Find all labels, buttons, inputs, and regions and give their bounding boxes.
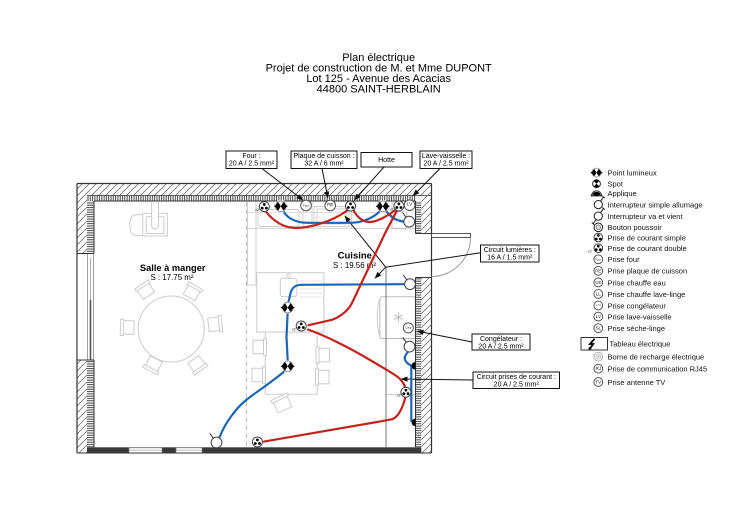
svg-text:Prise chauffe eau: Prise chauffe eau <box>608 278 666 287</box>
svg-text:Prise de courant simple: Prise de courant simple <box>608 233 686 242</box>
svg-text:Lave-vaisselle :: Lave-vaisselle : <box>422 153 470 160</box>
svg-text:Plaque de cuisson :: Plaque de cuisson : <box>293 153 354 160</box>
svg-text:Spot: Spot <box>608 180 624 189</box>
svg-text:Circuit prises de courant :: Circuit prises de courant : <box>477 374 556 381</box>
svg-text:SL: SL <box>595 326 601 331</box>
svg-text:Prise sèche-linge: Prise sèche-linge <box>608 324 666 333</box>
svg-text:Prise de courant double: Prise de courant double <box>608 244 687 253</box>
svg-text:x2: x2 <box>292 327 296 331</box>
svg-text:Four: Four <box>595 257 601 261</box>
svg-text:Bouton poussoir: Bouton poussoir <box>608 223 663 232</box>
svg-text:Tableau électrique: Tableau électrique <box>610 340 671 349</box>
svg-text:Cong: Cong <box>405 326 411 329</box>
svg-text:Hotte: Hotte <box>378 157 395 164</box>
svg-text:Borne de recharge électrique: Borne de recharge électrique <box>608 353 705 362</box>
svg-text:Salle à manger: Salle à manger <box>140 263 206 273</box>
svg-text:Four :: Four : <box>242 153 260 160</box>
svg-text:Applique: Applique <box>608 189 637 198</box>
svg-text:LL: LL <box>596 292 602 297</box>
svg-text:x2: x2 <box>588 249 592 253</box>
svg-text:Prise antenne TV: Prise antenne TV <box>608 378 666 387</box>
svg-text:x2: x2 <box>397 394 401 398</box>
svg-text:TV: TV <box>595 380 602 385</box>
svg-text:20 A / 2.5 mm²: 20 A / 2.5 mm² <box>494 382 540 389</box>
svg-text:LV: LV <box>407 202 413 208</box>
svg-text:20 A / 2.5 mm²: 20 A / 2.5 mm² <box>423 161 469 168</box>
svg-text:Congélateur :: Congélateur : <box>480 336 522 343</box>
svg-text:20 A / 2.5 mm²: 20 A / 2.5 mm² <box>478 344 524 351</box>
svg-text:16 A / 1.5 mm²: 16 A / 1.5 mm² <box>487 255 533 262</box>
svg-text:Interrupteur va et vient: Interrupteur va et vient <box>608 212 684 221</box>
svg-text:Point lumineux: Point lumineux <box>608 169 657 178</box>
svg-text:Prise four: Prise four <box>608 255 641 264</box>
svg-text:RJ: RJ <box>595 366 601 371</box>
svg-text:Prise de communication RJ45: Prise de communication RJ45 <box>608 365 708 374</box>
svg-text:Prise plaque de cuisson: Prise plaque de cuisson <box>608 267 688 276</box>
svg-text:PE: PE <box>595 268 601 273</box>
svg-text:S : 17.75 m²: S : 17.75 m² <box>151 273 194 282</box>
svg-text:32 A / 6 mm²: 32 A / 6 mm² <box>304 161 344 168</box>
svg-text:Prise congélateur: Prise congélateur <box>608 301 667 310</box>
svg-text:20 A / 2.5 mm²: 20 A / 2.5 mm² <box>229 161 275 168</box>
svg-text:Prise chauffe lave-linge: Prise chauffe lave-linge <box>608 290 686 299</box>
svg-text:Cuisine: Cuisine <box>338 250 372 261</box>
svg-text:PE: PE <box>327 202 333 208</box>
svg-text:44800 SAINT-HERBLAIN: 44800 SAINT-HERBLAIN <box>317 84 441 96</box>
svg-text:Four: Four <box>303 204 309 208</box>
svg-text:x2: x2 <box>390 207 394 211</box>
svg-text:Interrupteur simple allumage: Interrupteur simple allumage <box>608 201 703 210</box>
svg-text:x2: x2 <box>255 208 259 212</box>
svg-text:LV: LV <box>596 314 602 319</box>
svg-text:Cong: Cong <box>596 305 602 307</box>
svg-text:Prise lave-vaisselle: Prise lave-vaisselle <box>608 313 672 322</box>
svg-text:Circuit lumières :: Circuit lumières : <box>484 247 536 254</box>
svg-text:CE: CE <box>595 280 601 285</box>
